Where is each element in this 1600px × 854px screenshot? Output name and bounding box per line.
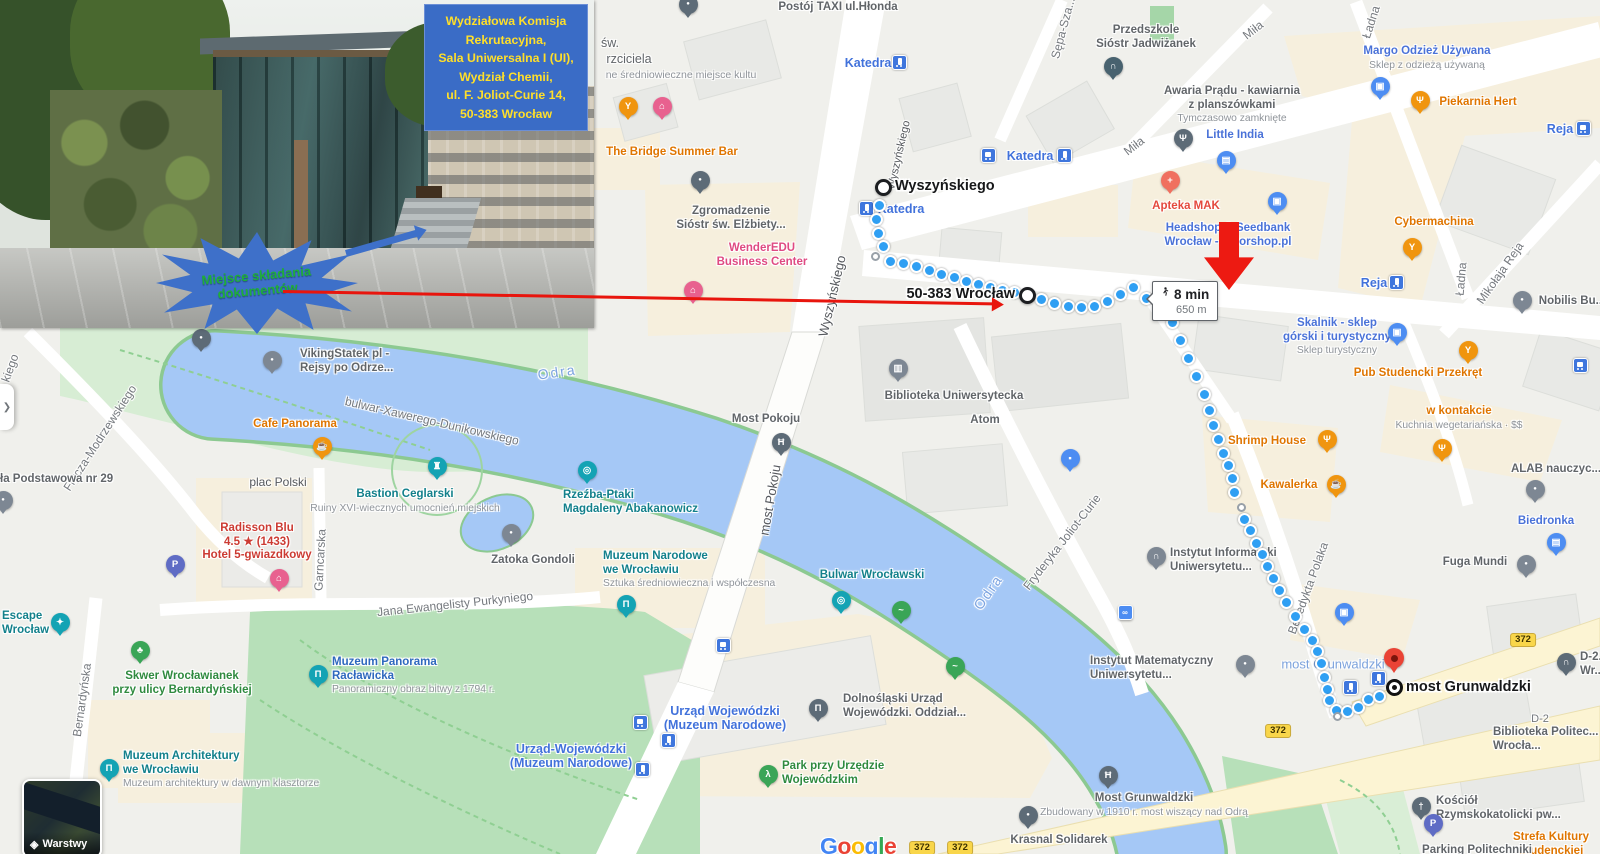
google-logo-letter: e [884,833,896,854]
walk-duration: 8 min [1174,287,1209,302]
callout-line: 50-383 Wrocław [427,105,585,124]
chevron-right-icon: ❯ [3,402,11,413]
callout-line: Wydziałowa Komisja [427,12,585,31]
callout-line: Wydział Chemii, [427,68,585,87]
map-screenshot: WyszyńskiegoWyszyńskiegomost PokojuFryde… [0,0,1600,854]
google-logo[interactable]: Google [820,833,896,854]
walking-person-icon [1159,285,1171,303]
sidebar-expand-button[interactable]: ❯ [0,384,14,430]
google-logo-letter: o [851,833,865,854]
walking-time-tooltip[interactable]: 8 min 650 m [1152,281,1218,321]
walk-distance: 650 m [1176,304,1209,316]
layers-control[interactable]: ◈ Warstwy [22,779,102,854]
callout-line: Rekrutacyjna, [427,31,585,50]
google-logo-letter: G [820,833,837,854]
photo-green-facade [50,90,222,266]
google-logo-letter: o [837,833,851,854]
layers-label: Warstwy [42,838,87,850]
address-callout: Wydziałowa Komisja Rekrutacyjna, Sala Un… [424,4,588,131]
callout-line: ul. F. Joliot-Curie 14, [427,86,585,105]
callout-line: Sala Uniwersalna I (UI), [427,49,585,68]
google-logo-letter: g [865,833,879,854]
layers-icon: ◈ [30,838,38,851]
